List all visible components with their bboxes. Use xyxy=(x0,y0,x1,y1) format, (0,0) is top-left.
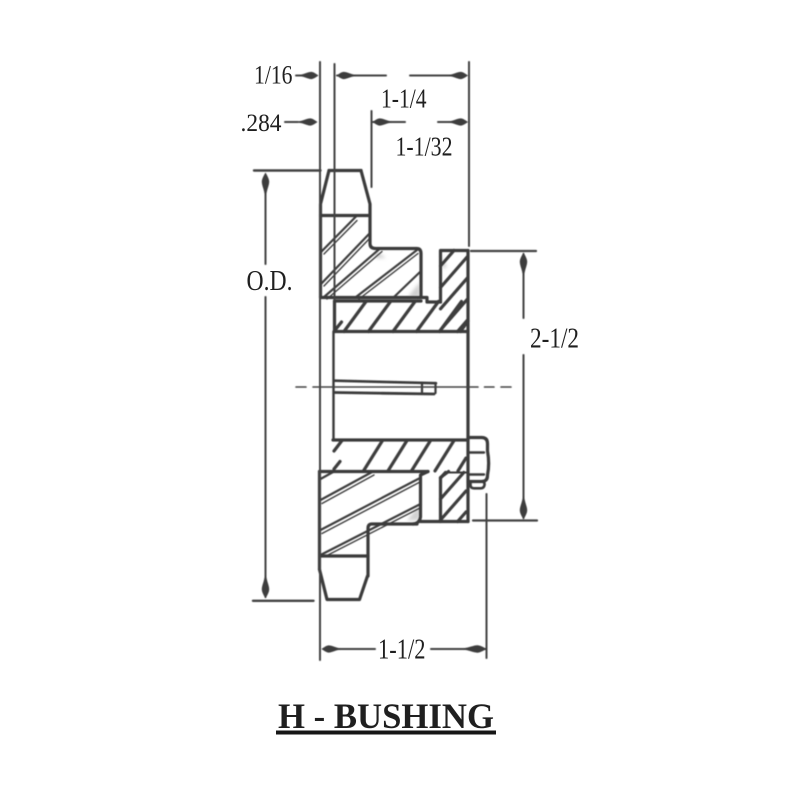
svg-text:1-1/2: 1-1/2 xyxy=(378,635,426,666)
svg-text:.284: .284 xyxy=(241,108,282,137)
svg-text:2-1/2: 2-1/2 xyxy=(530,324,579,355)
svg-text:1-1/32: 1-1/32 xyxy=(396,132,453,162)
svg-text:O.D.: O.D. xyxy=(247,266,293,297)
svg-text:H - BUSHING: H - BUSHING xyxy=(278,696,494,736)
svg-text:1-1/4: 1-1/4 xyxy=(381,84,427,114)
svg-text:1/16: 1/16 xyxy=(254,61,293,90)
